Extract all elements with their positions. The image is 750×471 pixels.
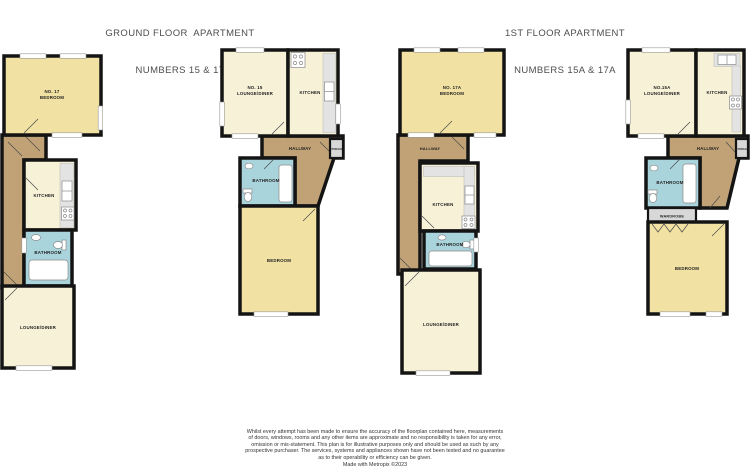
room-label: KITCHEN xyxy=(300,90,321,95)
window xyxy=(660,312,690,317)
room-label: BEDROOM xyxy=(440,91,464,96)
window xyxy=(638,134,664,139)
bathtub xyxy=(683,164,696,203)
title-ground-line1: GROUND FLOOR APARTMENT xyxy=(30,28,330,40)
toilet xyxy=(649,194,657,203)
bathtub xyxy=(429,251,472,266)
room-label: KITCHEN xyxy=(707,90,728,95)
room-label: STORAGE xyxy=(330,147,343,151)
floorplan-page: GROUND FLOOR APARTMENT NUMBERS 15 & 17 1… xyxy=(0,0,750,471)
room-label: BATHROOM xyxy=(436,242,463,247)
disclaimer: Whilst every attempt has been made to en… xyxy=(0,429,750,468)
toilet xyxy=(244,193,252,202)
window xyxy=(642,48,670,53)
window xyxy=(232,134,258,139)
toilet-tank xyxy=(470,240,474,249)
room-label: HALLWAY xyxy=(289,146,311,151)
room-label: BEDROOM xyxy=(267,258,291,263)
room-label: BEDROOM xyxy=(40,95,64,100)
stove xyxy=(62,207,75,220)
bathtub xyxy=(279,165,292,202)
floorplan-first-no17a: HALLWAY NO. 17A BEDROOM KITCHEN BATHROOM xyxy=(394,46,519,378)
room-label: LOUNGE/DINER xyxy=(237,91,274,96)
disclaimer-line: as to their operability or efficiency ca… xyxy=(0,455,750,461)
window xyxy=(474,133,496,138)
floorplan-ground-no15: HALLWAY STORAGE NO. 15 LOUNGE/DINER KITC… xyxy=(216,46,348,321)
window xyxy=(408,133,434,138)
sink xyxy=(32,235,41,241)
window xyxy=(22,238,27,253)
window xyxy=(414,48,440,53)
stove xyxy=(291,53,305,68)
window xyxy=(626,100,631,124)
floorplan-ground-no17: NO. 17 BEDROOM KITCHEN BATHROOM LOUNGE/D… xyxy=(0,48,110,373)
stove xyxy=(462,216,475,229)
window xyxy=(336,104,341,124)
floorplan-first-no15a: HALLWAY STORAGE NO.15A LOUNGE/DINER KITC… xyxy=(620,46,750,321)
window xyxy=(52,133,82,138)
room-label: BATHROOM xyxy=(34,250,61,255)
window xyxy=(220,102,225,126)
room-label: WARDROBE xyxy=(660,215,684,219)
sink xyxy=(438,235,446,240)
toilet xyxy=(54,242,63,249)
window xyxy=(254,312,288,317)
window xyxy=(16,366,52,371)
window xyxy=(416,371,450,376)
room-label: NO.15A xyxy=(653,85,671,90)
room-label: HALLWAY xyxy=(697,146,719,151)
title-first-line1: 1ST FLOOR APARTMENT xyxy=(415,28,715,40)
room-label: KITCHEN xyxy=(34,193,55,198)
window xyxy=(474,238,479,252)
window xyxy=(706,312,722,317)
room-label: LOUNGE/DINER xyxy=(20,325,57,330)
room-label: BEDROOM xyxy=(675,266,699,271)
room-label: NO. 17 xyxy=(44,89,59,94)
window xyxy=(236,48,264,53)
room-label: BATHROOM xyxy=(656,180,683,185)
bathtub xyxy=(29,260,68,280)
room-label: BATHROOM xyxy=(252,178,279,183)
room-label: HALLWAY xyxy=(420,146,441,151)
room-label: LOUNGE/DINER xyxy=(423,322,460,327)
window xyxy=(20,54,46,59)
window xyxy=(98,106,103,130)
room-label: NO. 15 xyxy=(247,85,262,90)
room-label: LOUNGE/DINER xyxy=(644,91,681,96)
window xyxy=(458,48,484,53)
room-label: STORAGE xyxy=(736,147,749,151)
window xyxy=(60,54,86,59)
sink xyxy=(650,165,658,171)
stove xyxy=(730,96,742,109)
room-label: KITCHEN xyxy=(433,202,454,207)
metropix-credit: Made with Metropix ©2023 xyxy=(0,462,750,468)
room-label: NO. 17A xyxy=(443,85,462,90)
sink xyxy=(245,163,253,169)
